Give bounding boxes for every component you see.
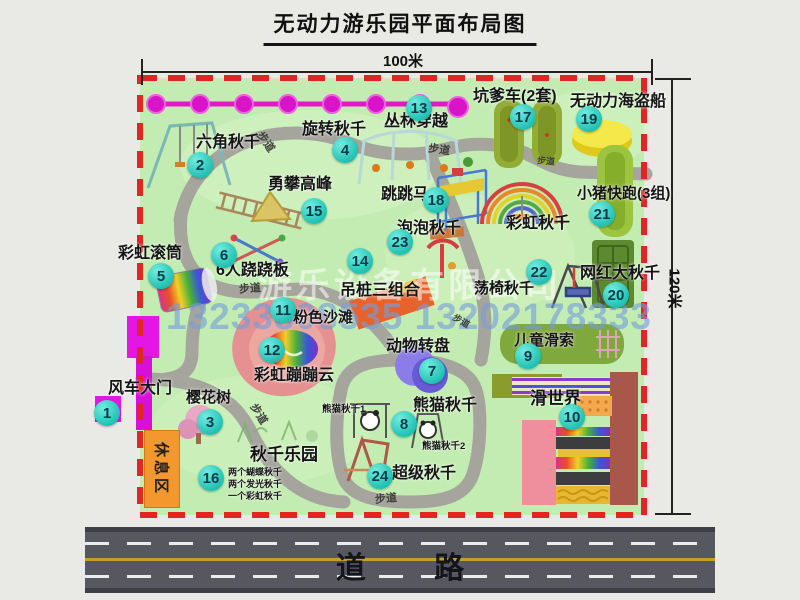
label-swing-park: 秋千乐园 bbox=[250, 446, 318, 463]
swing-park-note-2: 两个发光秋千 bbox=[228, 480, 282, 489]
label-windmill-gate: 风车大门 bbox=[108, 381, 172, 397]
badge-8: 8 bbox=[391, 411, 417, 437]
badge-4: 4 bbox=[332, 137, 358, 163]
label-hex-swing: 六角秋千 bbox=[196, 135, 260, 151]
badge-20: 20 bbox=[603, 282, 629, 308]
badge-13: 13 bbox=[406, 95, 432, 121]
badge-12: 12 bbox=[259, 337, 285, 363]
badge-14: 14 bbox=[347, 248, 373, 274]
road: 道 路 bbox=[85, 527, 715, 593]
label-rainbow-cloud: 彩虹蹦蹦云 bbox=[254, 368, 334, 384]
label-panda-swing-1: 熊猫秋千1 bbox=[322, 405, 365, 415]
badge-1: 1 bbox=[94, 400, 120, 426]
label-pit-car: 坑爹车(2套) bbox=[473, 89, 557, 105]
label-super-swing: 超级秋千 bbox=[392, 466, 456, 482]
badge-5: 5 bbox=[148, 263, 174, 289]
label-rainbow-swing: 彩虹秋千 bbox=[506, 216, 570, 232]
walkway-label-3: 步道 bbox=[537, 156, 556, 167]
walkway-label-4: 步道 bbox=[239, 283, 262, 296]
label-rotating-swing: 旋转秋千 bbox=[302, 122, 366, 138]
badge-7: 7 bbox=[419, 358, 445, 384]
swing-park-note-3: 一个彩虹秋千 bbox=[228, 492, 282, 501]
label-swing-chair: 荡椅秋千 bbox=[474, 281, 534, 296]
badge-3: 3 bbox=[197, 409, 223, 435]
dimension-height-label: 120米 bbox=[665, 268, 686, 308]
label-climbing-peak: 勇攀高峰 bbox=[268, 177, 332, 193]
badge-18: 18 bbox=[423, 187, 449, 213]
label-big-swing: 网红大秋千 bbox=[580, 266, 660, 282]
label-pink-beach: 粉色沙滩 bbox=[293, 310, 353, 325]
badge-22: 22 bbox=[526, 259, 552, 285]
park-layout-map: 无动力游乐园平面布局图 bbox=[0, 0, 800, 600]
label-rainbow-roller: 彩虹滚筒 bbox=[118, 246, 182, 262]
label-piggy-run: 小猪快跑(3组) bbox=[577, 186, 670, 201]
badge-19: 19 bbox=[576, 106, 602, 132]
label-panda-swing: 熊猫秋千 bbox=[413, 398, 477, 414]
page-title: 无动力游乐园平面布局图 bbox=[264, 8, 537, 46]
rest-area-label: 休息区 bbox=[152, 442, 173, 496]
walkway-label-7: 步道 bbox=[375, 493, 398, 506]
label-jumping-horse: 跳跳马 bbox=[381, 187, 429, 203]
label-hanging-pile: 吊桩三组合 bbox=[340, 283, 420, 299]
badge-17: 17 bbox=[510, 104, 536, 130]
dimension-width-label: 100米 bbox=[383, 50, 423, 71]
rest-area: 休息区 bbox=[144, 430, 180, 508]
badge-15: 15 bbox=[301, 198, 327, 224]
badge-21: 21 bbox=[589, 201, 615, 227]
badge-2: 2 bbox=[187, 152, 213, 178]
label-panda-swing-2: 熊猫秋千2 bbox=[422, 442, 465, 452]
watermark-phone: 13233808535 13202178333 bbox=[166, 296, 652, 338]
badge-9: 9 bbox=[515, 343, 541, 369]
label-cherry-tree: 樱花树 bbox=[186, 390, 231, 405]
swing-park-note-1: 两个蝴蝶秋千 bbox=[228, 468, 282, 477]
label-animal-turntable: 动物转盘 bbox=[386, 339, 450, 355]
badge-23: 23 bbox=[387, 229, 413, 255]
road-label: 道 路 bbox=[85, 543, 715, 587]
badge-6: 6 bbox=[211, 242, 237, 268]
badge-10: 10 bbox=[559, 404, 585, 430]
badge-24: 24 bbox=[367, 463, 393, 489]
badge-16: 16 bbox=[198, 465, 224, 491]
badge-11: 11 bbox=[270, 297, 296, 323]
